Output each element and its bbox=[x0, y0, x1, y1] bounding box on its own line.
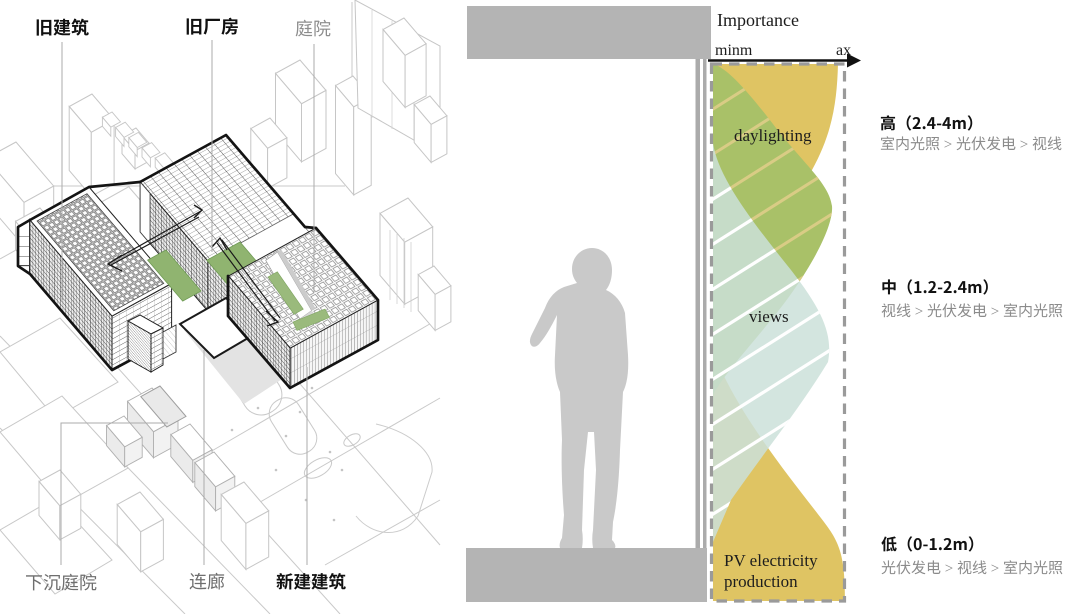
svg-text:中（1.2-2.4m）: 中（1.2-2.4m） bbox=[881, 274, 999, 298]
svg-text:daylighting: daylighting bbox=[734, 126, 812, 145]
svg-text:低（0-1.2m）: 低（0-1.2m） bbox=[881, 531, 984, 555]
svg-text:下沉庭院: 下沉庭院 bbox=[25, 569, 97, 595]
svg-text:views: views bbox=[749, 307, 789, 326]
svg-text:minm: minm bbox=[715, 42, 753, 59]
svg-text:室内光照 > 光伏发电 > 视线: 室内光照 > 光伏发电 > 视线 bbox=[880, 133, 1062, 154]
svg-text:Importance: Importance bbox=[717, 10, 799, 30]
svg-text:旧厂房: 旧厂房 bbox=[185, 13, 239, 39]
svg-text:庭院: 庭院 bbox=[295, 15, 331, 41]
svg-text:高（2.4-4m）: 高（2.4-4m） bbox=[880, 110, 983, 134]
svg-text:PV electricity: PV electricity bbox=[724, 551, 818, 570]
svg-text:production: production bbox=[724, 572, 798, 591]
svg-text:光伏发电 > 视线 > 室内光照: 光伏发电 > 视线 > 室内光照 bbox=[881, 557, 1063, 578]
svg-text:旧建筑: 旧建筑 bbox=[35, 14, 89, 40]
svg-text:连廊: 连廊 bbox=[189, 568, 225, 594]
svg-text:视线 > 光伏发电 > 室内光照: 视线 > 光伏发电 > 室内光照 bbox=[881, 300, 1063, 321]
svg-text:新建建筑: 新建建筑 bbox=[276, 569, 346, 594]
